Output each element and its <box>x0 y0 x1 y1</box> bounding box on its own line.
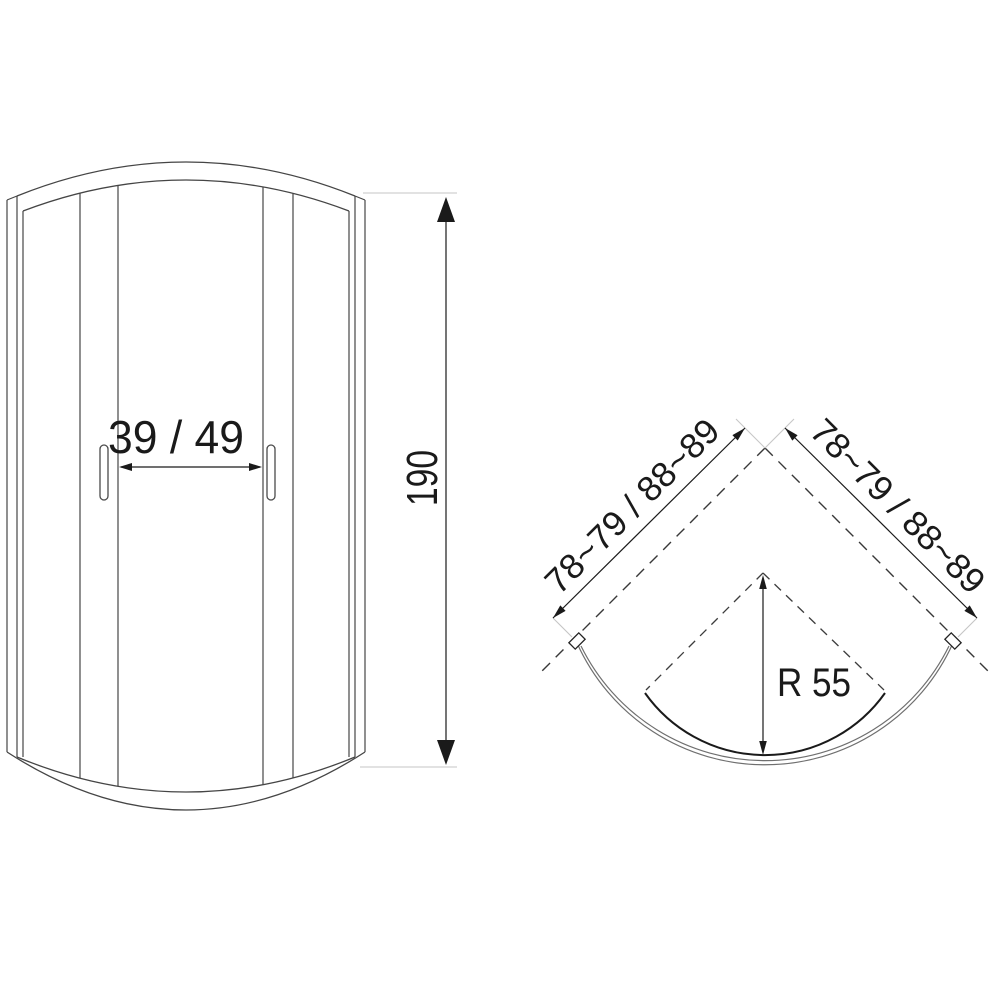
left-end-extension-line <box>553 618 572 637</box>
right-end-extension-line <box>958 618 977 637</box>
top-outer-arch-line <box>17 162 355 196</box>
left-wall-dimension: 78~79 / 88~89 <box>537 411 745 618</box>
right-frame-top-cap <box>355 196 365 200</box>
opening-width-dimension: 39 / 49 <box>108 411 262 471</box>
opening-dimension-arrow-left <box>119 463 132 471</box>
plan-view: 78~79 / 88~89 78~79 / 88~89 <box>537 411 993 765</box>
height-dimension: 190 <box>360 193 457 767</box>
technical-drawing-canvas: 39 / 49 190 <box>0 0 1000 1000</box>
right-door-handle <box>267 445 275 500</box>
height-dimension-arrow-bottom <box>437 740 455 765</box>
right-wall-dimension: 78~79 / 88~89 <box>785 411 993 618</box>
radius-label: R 55 <box>777 661 851 705</box>
shower-enclosure-diagram: 39 / 49 190 <box>0 0 1000 1000</box>
opening-dimension-arrow-right <box>249 463 262 471</box>
left-frame-top-cap <box>7 196 17 200</box>
height-label: 190 <box>398 450 447 506</box>
height-dimension-arrow-top <box>437 197 455 222</box>
front-elevation-view: 39 / 49 190 <box>7 162 457 810</box>
radius-dashed-line-left <box>646 573 763 690</box>
radius-dimension: R 55 <box>759 575 851 755</box>
radius-arrow-top <box>759 575 767 589</box>
right-wall-end-profile <box>945 633 961 649</box>
bottom-outer-curve-line <box>7 752 365 810</box>
left-wall-label: 78~79 / 88~89 <box>537 411 727 601</box>
left-door-handle <box>100 445 108 500</box>
left-wall-end-profile <box>569 633 585 649</box>
left-wall-dimension-line <box>553 428 745 618</box>
bottom-inner-curve-line <box>17 757 355 792</box>
radius-arrow-bottom <box>759 741 767 755</box>
top-inner-arch-line <box>23 180 349 211</box>
right-wall-dimension-line <box>785 428 977 618</box>
opening-width-label: 39 / 49 <box>108 411 244 463</box>
right-wall-label: 78~79 / 88~89 <box>803 411 993 601</box>
